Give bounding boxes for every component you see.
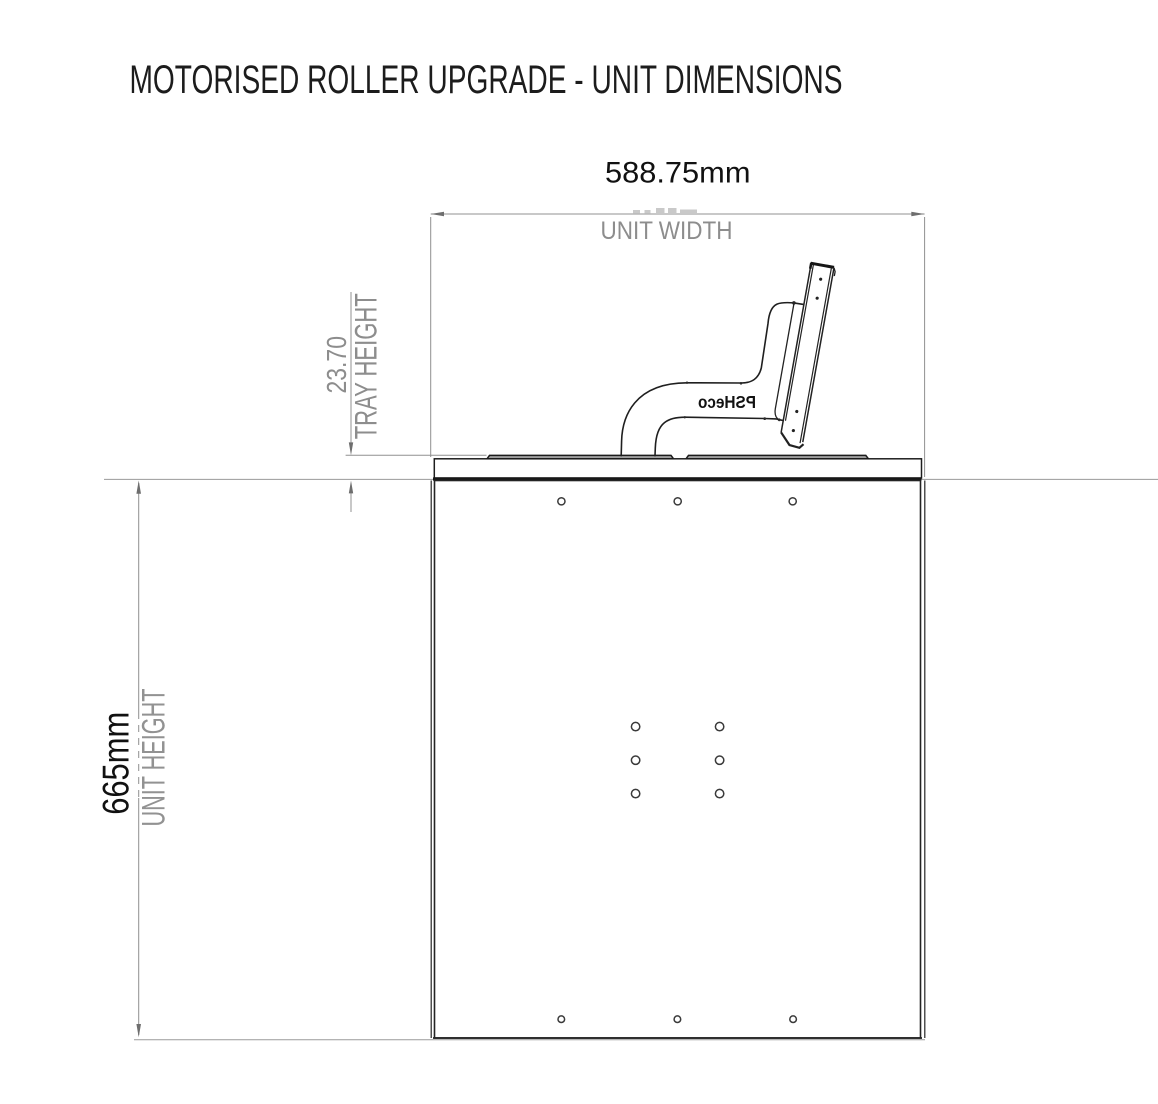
svg-text:MOTORISED ROLLER UPGRADE - UNI: MOTORISED ROLLER UPGRADE - UNIT DIMENSIO… <box>130 58 843 102</box>
svg-text:UNIT WIDTH: UNIT WIDTH <box>601 217 733 245</box>
svg-text:PSHeco: PSHeco <box>698 392 756 412</box>
svg-text:588.75mm: 588.75mm <box>605 156 751 189</box>
svg-text:665mm: 665mm <box>95 712 137 815</box>
svg-text:TRAY HEIGHT: TRAY HEIGHT <box>348 293 384 439</box>
svg-text:UNIT HEIGHT: UNIT HEIGHT <box>136 689 172 827</box>
